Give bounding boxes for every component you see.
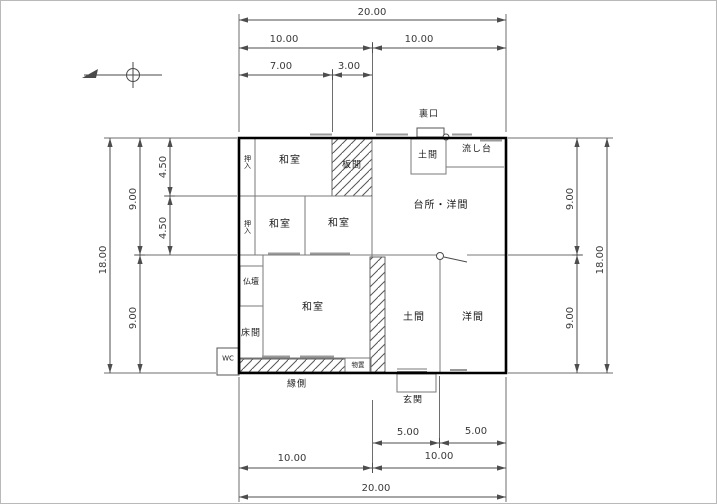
orientation-symbol	[82, 62, 162, 88]
room-label-washitsu-main: 和室	[302, 303, 324, 313]
fixture-label-butsudan: 仏壇	[243, 278, 259, 286]
room-label-engawa: 縁側	[287, 381, 307, 390]
room-label-genkan: 玄関	[403, 397, 423, 406]
fixture-label-nagashidai: 流し台	[462, 146, 492, 155]
dim-bottom-sub-left: 5.00	[397, 428, 419, 438]
room-label-doma: 土間	[403, 313, 425, 323]
dim-right-half-top: 9.00	[566, 188, 576, 210]
dim-bottom-half-left: 10.00	[278, 454, 307, 464]
dim-top-half-right: 10.00	[405, 35, 434, 45]
dim-left-sub-top: 4.50	[159, 156, 169, 178]
door-label-uraguchi: 裏口	[419, 111, 439, 120]
room-label-tokonoma: 床間	[241, 330, 261, 339]
room-label-washitsu-c1: 和室	[269, 220, 291, 230]
room-label-wc: WC	[222, 356, 234, 363]
dim-top-half-left: 10.00	[270, 35, 299, 45]
dim-bottom-sub-right: 5.00	[465, 427, 487, 437]
room-label-washitsu-c2: 和室	[328, 219, 350, 229]
dim-top-total: 20.00	[358, 8, 387, 18]
room-label-oshiire-mid: 押入	[244, 220, 251, 234]
dim-left-total: 18.00	[99, 246, 109, 275]
floor-plan-drawing: 和室 板間 押入 押入 和室 和室 台所・洋間 土間 流し台 裏口 仏壇 床間 …	[0, 0, 717, 504]
room-label-daidokoro-yoma: 台所・洋間	[414, 201, 469, 211]
dim-bottom-half-right: 10.00	[425, 452, 454, 462]
room-label-washitsu-nw: 和室	[279, 156, 301, 166]
dimension-lines	[110, 20, 607, 497]
dim-bottom-total: 20.00	[362, 484, 391, 494]
dim-top-sub-left: 7.00	[270, 62, 292, 72]
extension-lines	[104, 14, 613, 502]
dim-right-half-bottom: 9.00	[566, 307, 576, 329]
dim-top-sub-right: 3.00	[338, 62, 360, 72]
room-label-doma-top: 土間	[418, 152, 438, 161]
interior-door-hinge-icon	[437, 253, 444, 260]
room-label-monooki: 物置	[352, 362, 365, 369]
room-label-itanoma: 板間	[342, 162, 362, 171]
dim-left-half-bottom: 9.00	[129, 307, 139, 329]
dim-left-half-top: 9.00	[129, 188, 139, 210]
dim-right-total: 18.00	[596, 246, 606, 275]
room-label-oshiire-top: 押入	[244, 155, 251, 169]
dim-left-sub-bottom: 4.50	[159, 217, 169, 239]
room-label-yoma: 洋間	[462, 313, 484, 323]
